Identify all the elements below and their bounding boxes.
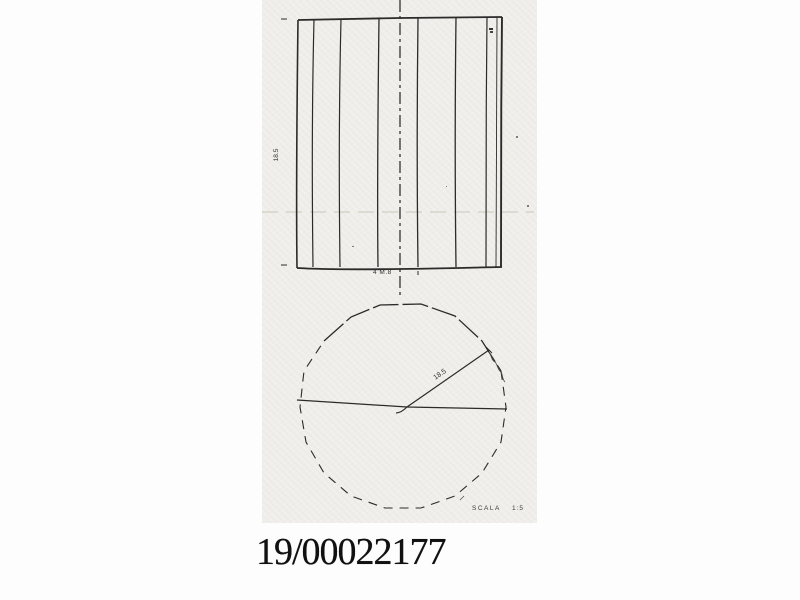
technical-drawing: 18.5 4 M.8 18.5 SCALA 1:5	[0, 0, 800, 600]
flute-line	[496, 17, 497, 267]
scale-label: SCALA	[472, 505, 501, 512]
elevation-left-edge	[297, 20, 298, 268]
plan-diameter-line	[297, 400, 507, 409]
scale-note: SCALA 1:5	[472, 505, 524, 512]
handwritten-annotation	[489, 352, 505, 382]
stray-mark	[460, 496, 464, 500]
flute-line	[312, 19, 314, 267]
elevation-top-edge	[298, 17, 502, 20]
plan-polygon-solid-arc	[324, 304, 501, 371]
plan-radius-line	[396, 350, 489, 413]
stray-mark	[489, 28, 493, 30]
elevation-view	[281, 17, 502, 275]
annotation-dot	[498, 367, 500, 369]
flute-line	[378, 18, 379, 267]
flute-line	[486, 17, 487, 267]
scale-value: 1:5	[512, 505, 524, 512]
stray-mark	[490, 31, 493, 33]
flute-line	[455, 17, 456, 267]
catalog-number: 19/00022177	[256, 530, 446, 574]
elevation-right-edge	[501, 17, 502, 267]
flute-line	[417, 18, 418, 267]
elevation-base-dimension-label: 4 M.8	[373, 269, 392, 276]
elevation-bottom-edge	[297, 267, 502, 269]
flute-line	[339, 19, 341, 267]
elevation-height-dimension-label: 18.5	[273, 148, 280, 161]
plan-polygon-dashed-arc	[300, 341, 506, 508]
plan-view	[297, 304, 507, 508]
